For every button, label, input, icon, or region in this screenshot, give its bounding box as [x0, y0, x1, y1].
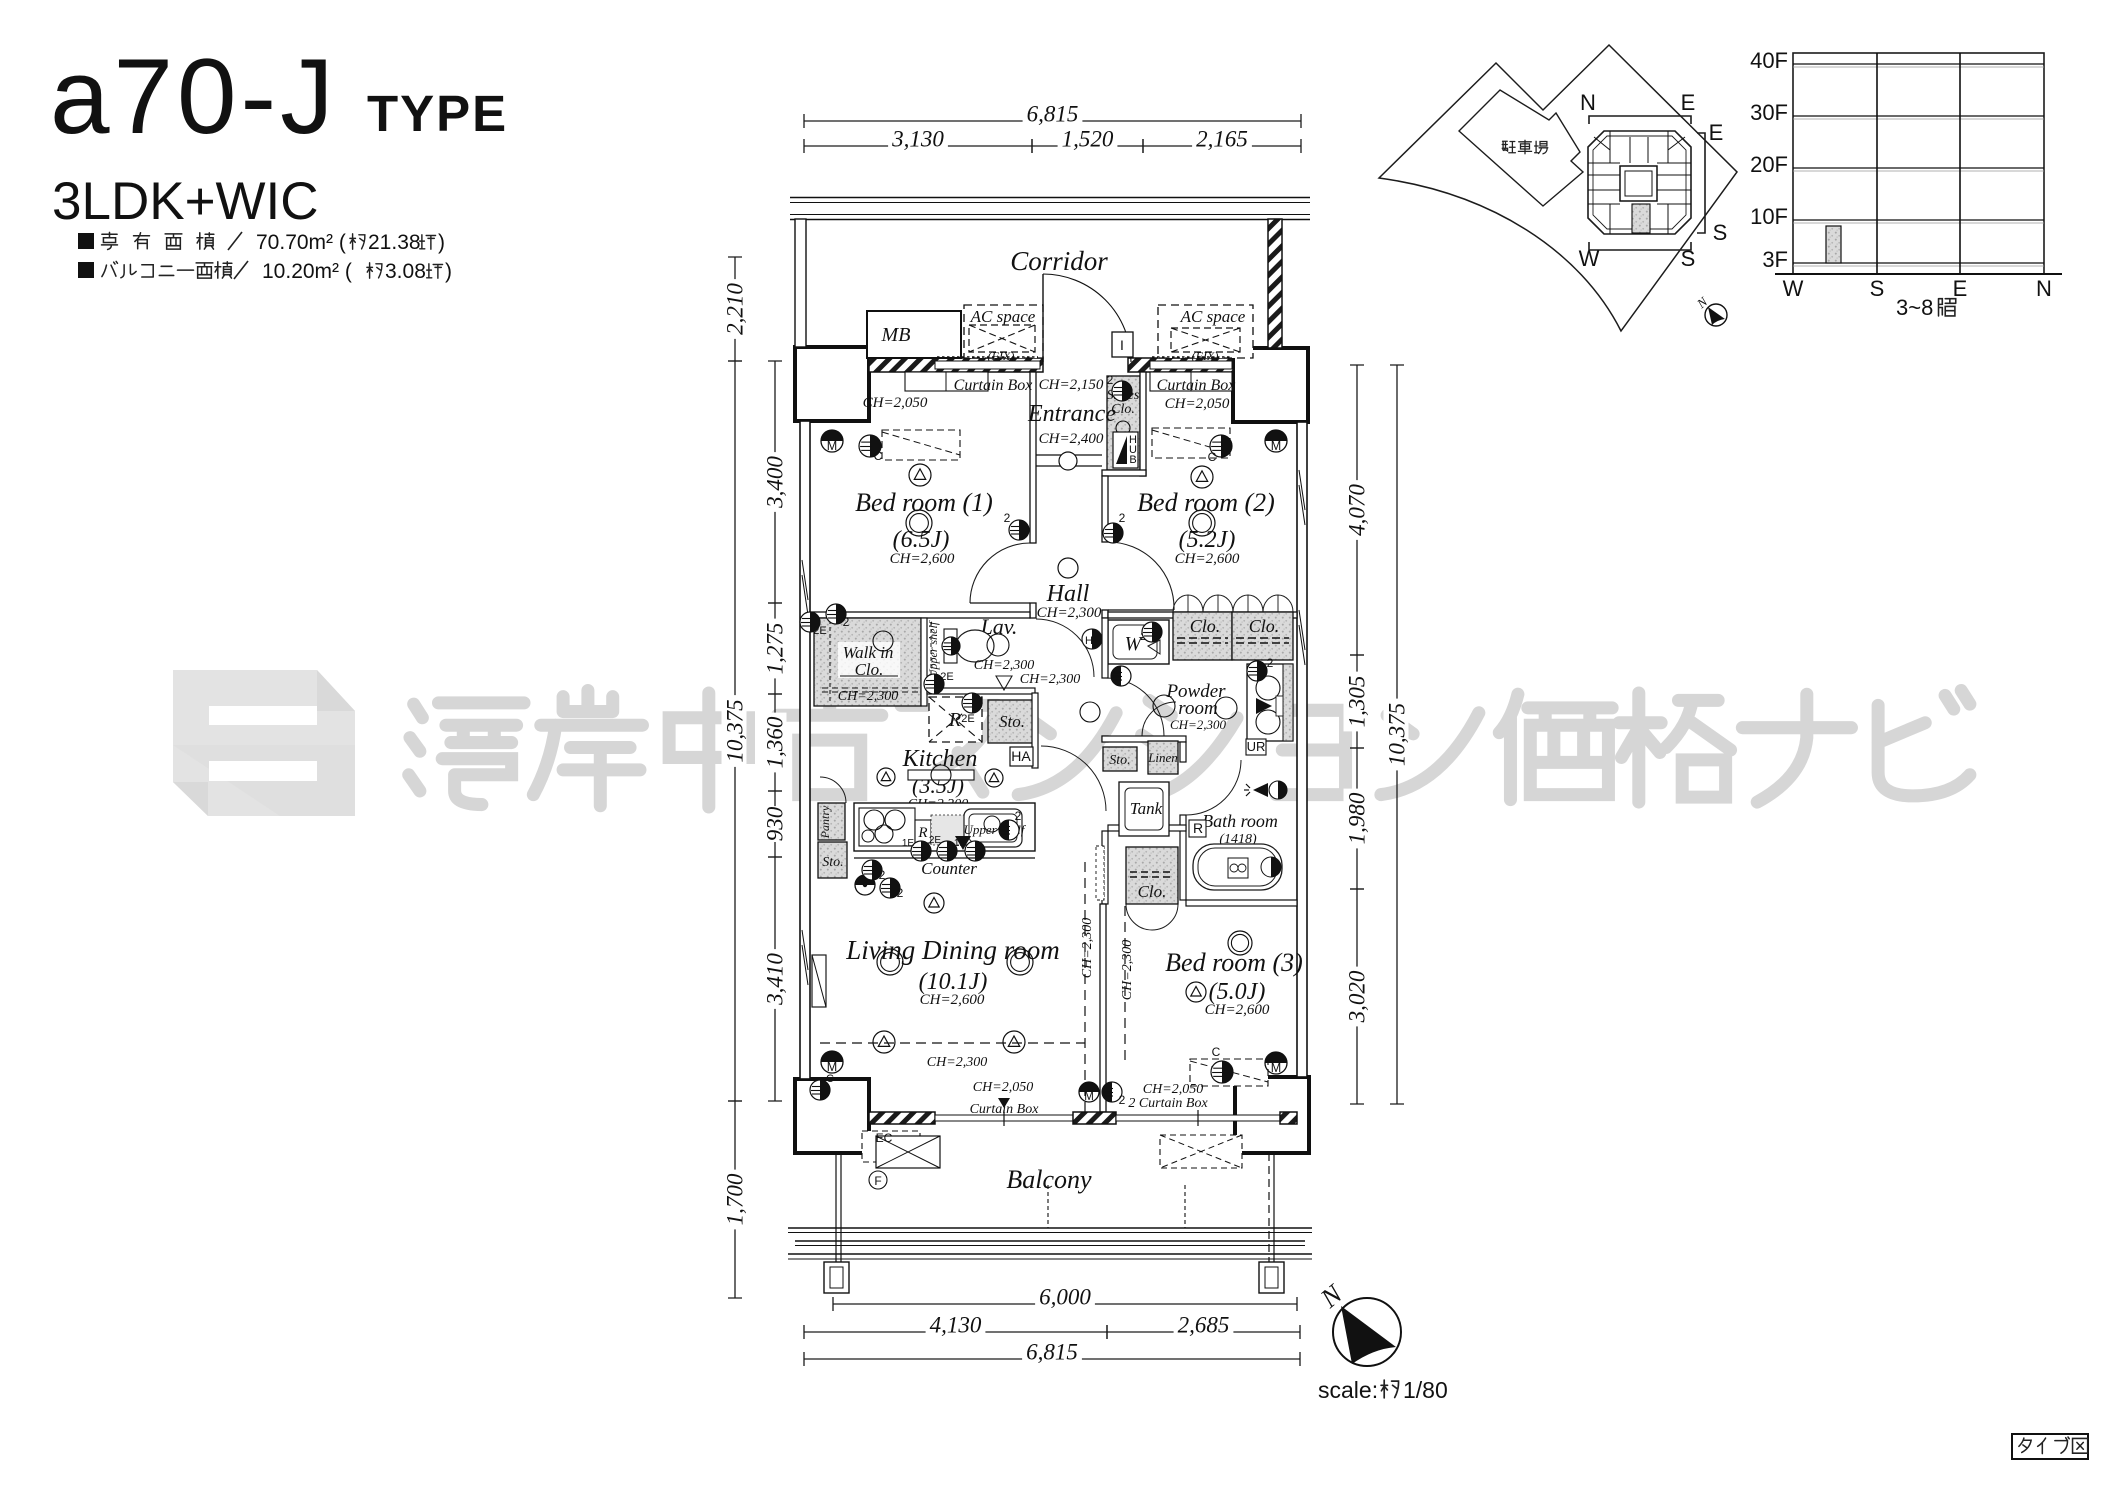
svg-text:TYPE: TYPE: [367, 85, 508, 142]
svg-text:CH=2,300: CH=2,300: [927, 1055, 987, 1070]
svg-text:CH=2,600: CH=2,600: [890, 551, 955, 567]
svg-text:M: M: [1271, 439, 1282, 453]
svg-text:10,375: 10,375: [722, 699, 747, 762]
svg-text:CH=2,050: CH=2,050: [1143, 1082, 1203, 1097]
svg-text:2: 2: [1119, 1093, 1126, 1107]
svg-text:): ): [438, 231, 445, 254]
svg-text:S: S: [1681, 246, 1696, 271]
svg-text:2 Curtain Box: 2 Curtain Box: [1128, 1096, 1208, 1111]
svg-text:CH=2,300: CH=2,300: [1020, 672, 1080, 687]
svg-text:M: M: [827, 1060, 838, 1074]
svg-text:N: N: [1580, 90, 1596, 115]
svg-text:2: 2: [1015, 809, 1022, 823]
svg-text:AC space: AC space: [1180, 307, 1246, 326]
svg-text:Curtain Box: Curtain Box: [1157, 377, 1236, 394]
svg-text:2,165: 2,165: [1196, 126, 1248, 151]
svg-text:1,700: 1,700: [722, 1173, 747, 1225]
svg-text:N: N: [2036, 276, 2052, 301]
svg-text:M: M: [827, 439, 838, 453]
svg-text:Bed room (3): Bed room (3): [1165, 948, 1303, 977]
svg-text:30F: 30F: [1750, 100, 1788, 125]
svg-text:UR: UR: [1247, 739, 1266, 754]
svg-text:70.70m² (: 70.70m² (: [256, 231, 346, 254]
svg-text:3F: 3F: [1762, 247, 1788, 272]
svg-text:HA: HA: [1011, 748, 1031, 764]
svg-text:Clo.: Clo.: [1138, 882, 1167, 901]
svg-text:CH=2,150: CH=2,150: [1039, 377, 1104, 393]
svg-text:1,305: 1,305: [1344, 676, 1369, 728]
svg-text:CH=2,300: CH=2,300: [1120, 940, 1135, 1000]
svg-text:2: 2: [1267, 656, 1274, 670]
svg-text:EC: EC: [876, 1131, 893, 1145]
svg-text:Bed room (2): Bed room (2): [1137, 488, 1275, 517]
svg-text:S: S: [1870, 276, 1885, 301]
svg-text:W: W: [1783, 276, 1804, 301]
svg-text:Entrance: Entrance: [1027, 401, 1116, 427]
svg-text:C: C: [826, 1073, 834, 1085]
svg-text:2: 2: [879, 868, 886, 882]
svg-text:): ): [445, 260, 452, 283]
svg-text:2: 2: [897, 886, 904, 900]
svg-text:1/80: 1/80: [1403, 1377, 1448, 1403]
svg-text:20F: 20F: [1750, 152, 1788, 177]
svg-text:Hall: Hall: [1046, 581, 1090, 607]
svg-text:CH=2,300: CH=2,300: [974, 658, 1034, 673]
svg-text:S: S: [1713, 220, 1728, 245]
svg-text:Tank: Tank: [1130, 799, 1163, 818]
svg-text:R: R: [948, 709, 961, 731]
svg-text:R: R: [1193, 820, 1203, 836]
svg-text:2: 2: [1107, 373, 1114, 387]
svg-text:Counter: Counter: [921, 859, 977, 878]
svg-text:a70-J: a70-J: [50, 36, 338, 156]
svg-text:F: F: [874, 1174, 881, 1188]
svg-text:C: C: [1212, 1045, 1221, 1059]
svg-text:Curtain Box: Curtain Box: [970, 1102, 1040, 1117]
svg-text:2E: 2E: [813, 625, 826, 637]
svg-text:3~8: 3~8: [1896, 295, 1933, 320]
svg-text:10F: 10F: [1750, 204, 1788, 229]
svg-text:1,520: 1,520: [1062, 126, 1114, 151]
svg-text:10,375: 10,375: [1384, 703, 1409, 766]
svg-text:Balcony: Balcony: [1006, 1165, 1092, 1194]
svg-text:C: C: [1208, 450, 1217, 464]
svg-text:H: H: [1085, 635, 1093, 647]
svg-text:Sto.: Sto.: [822, 855, 843, 870]
svg-text:3,410: 3,410: [762, 953, 787, 1006]
svg-text:scale:: scale:: [1318, 1377, 1378, 1403]
svg-text:Clo.: Clo.: [1190, 616, 1221, 636]
svg-text:W: W: [1579, 246, 1600, 271]
svg-text:3,400: 3,400: [762, 456, 787, 509]
svg-text:AC space: AC space: [970, 307, 1036, 326]
svg-text:1,360: 1,360: [762, 716, 787, 768]
svg-text:Bath room: Bath room: [1202, 811, 1278, 831]
svg-text:10.20m² (: 10.20m² (: [262, 260, 352, 283]
svg-text:2,685: 2,685: [1178, 1312, 1230, 1337]
svg-text:C: C: [874, 449, 883, 463]
svg-text:Kitchen: Kitchen: [902, 746, 978, 772]
svg-text:1,980: 1,980: [1344, 792, 1369, 844]
svg-text:2E: 2E: [929, 835, 942, 846]
svg-text:CH=2,050: CH=2,050: [863, 395, 928, 411]
svg-text:CH=2,050: CH=2,050: [1165, 396, 1230, 412]
svg-text:Linen: Linen: [1147, 750, 1178, 765]
svg-text:2,210: 2,210: [722, 283, 747, 335]
svg-text:Corridor: Corridor: [1010, 246, 1108, 276]
svg-text:R: R: [917, 825, 927, 841]
svg-text:room: room: [1178, 698, 1217, 719]
svg-text:CH=2,400: CH=2,400: [1039, 431, 1104, 447]
svg-text:4,130: 4,130: [930, 1312, 982, 1337]
svg-text:3,130: 3,130: [891, 126, 944, 151]
svg-text:930: 930: [762, 806, 787, 841]
svg-text:1E: 1E: [954, 838, 967, 849]
svg-text:2: 2: [1004, 511, 1011, 525]
svg-text:2E: 2E: [961, 713, 974, 725]
svg-text:CH=2,300: CH=2,300: [1037, 605, 1102, 621]
svg-text:40F: 40F: [1750, 48, 1788, 73]
svg-text:CH=2,600: CH=2,600: [1175, 551, 1240, 567]
svg-text:Sto.: Sto.: [1109, 753, 1130, 768]
svg-text:2: 2: [843, 615, 850, 629]
svg-text:2: 2: [1119, 511, 1126, 525]
svg-text:Pantry: Pantry: [818, 805, 832, 839]
svg-text:Upper shelf: Upper shelf: [926, 620, 940, 678]
svg-text:CH=2,300: CH=2,300: [1170, 717, 1227, 732]
svg-text:Clo.: Clo.: [1249, 616, 1280, 636]
svg-text:1E: 1E: [902, 838, 915, 849]
svg-text:B: B: [1129, 454, 1136, 466]
svg-text:CH=2,050: CH=2,050: [973, 1080, 1033, 1095]
svg-text:M: M: [1084, 1091, 1094, 1103]
svg-text:6,815: 6,815: [1026, 1339, 1078, 1364]
svg-text:Sto.: Sto.: [999, 712, 1025, 731]
svg-text:1,275: 1,275: [762, 623, 787, 675]
svg-text:CH=2,300: CH=2,300: [1080, 918, 1095, 978]
svg-text:MB: MB: [881, 324, 911, 346]
svg-text:(6.5J): (6.5J): [893, 527, 950, 553]
svg-text:E: E: [1681, 90, 1696, 115]
svg-text:3.08: 3.08: [385, 260, 426, 283]
svg-text:M: M: [1271, 1061, 1282, 1075]
svg-text:Bed room (1): Bed room (1): [855, 488, 993, 517]
svg-text:CH=2,300: CH=2,300: [838, 689, 898, 704]
svg-text:3,020: 3,020: [1344, 970, 1369, 1023]
svg-text:4,070: 4,070: [1344, 484, 1369, 536]
svg-text:Curtain Box: Curtain Box: [954, 377, 1033, 394]
svg-text:6,815: 6,815: [1027, 101, 1079, 126]
svg-text:I: I: [1120, 337, 1124, 353]
svg-text:CH=2,600: CH=2,600: [1205, 1002, 1270, 1018]
svg-text:2E: 2E: [940, 671, 953, 683]
svg-text:3LDK+WIC: 3LDK+WIC: [52, 172, 319, 231]
svg-text:6,000: 6,000: [1039, 1284, 1091, 1309]
svg-text:CH=2,600: CH=2,600: [920, 992, 985, 1008]
svg-text:E: E: [1709, 120, 1724, 145]
svg-text:21.38: 21.38: [368, 231, 421, 254]
svg-text:E: E: [1953, 276, 1968, 301]
